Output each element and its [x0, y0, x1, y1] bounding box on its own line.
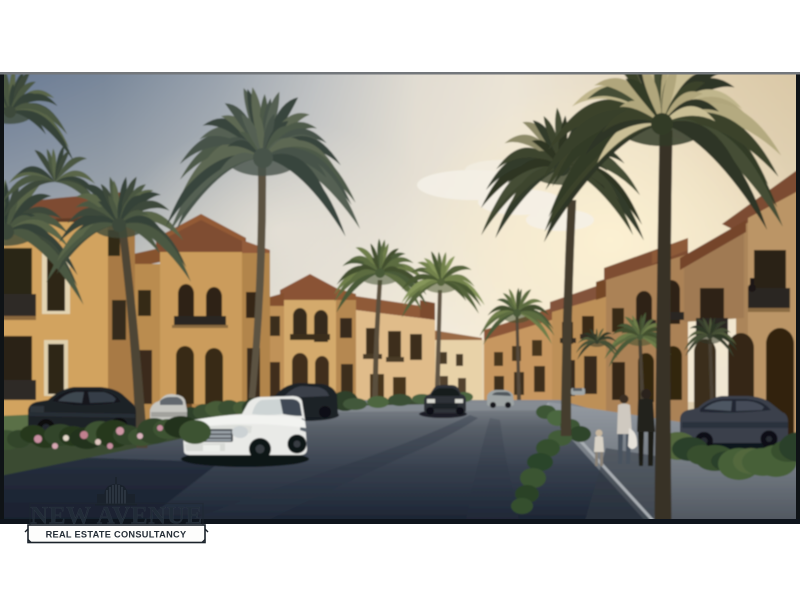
svg-text:REAL ESTATE CONSULTANCY: REAL ESTATE CONSULTANCY — [46, 530, 187, 540]
